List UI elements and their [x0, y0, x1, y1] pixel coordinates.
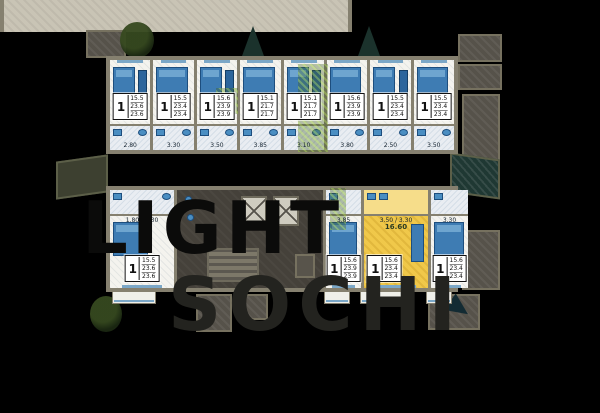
toilet-icon	[399, 129, 408, 136]
balcony	[112, 292, 156, 304]
total-area: 23.6	[142, 264, 155, 272]
total-area: 23.6	[130, 102, 143, 110]
full-area: 23.4	[390, 110, 403, 118]
bed-furniture	[330, 67, 361, 93]
window	[332, 285, 354, 288]
sink-icon	[200, 129, 209, 136]
sink-icon	[367, 193, 376, 200]
elevator	[241, 196, 267, 226]
living-area: 15.1	[260, 95, 273, 102]
dimension-label: 3.30	[167, 143, 180, 149]
window	[421, 60, 447, 63]
sink-icon	[187, 214, 194, 221]
corridor	[0, 0, 352, 32]
stove-icon	[379, 193, 388, 200]
living-area: 15.5	[174, 95, 187, 102]
unit-label: 1 15.623.423.4	[367, 255, 402, 282]
window	[122, 285, 163, 288]
full-area: 23.9	[344, 272, 357, 280]
toilet-icon	[442, 129, 451, 136]
bed-furniture	[434, 222, 464, 256]
total-area: 21.7	[260, 102, 273, 110]
stairwell-room-top-right	[458, 64, 502, 90]
sink-icon	[417, 129, 426, 136]
total-area: 23.4	[390, 102, 403, 110]
unit-cell[interactable]: 1.80 / 3.30 1 15.523.623.6	[110, 190, 174, 288]
total-area: 23.4	[174, 102, 187, 110]
unit-label: 1 15.623.923.9	[330, 93, 365, 120]
living-area: 15.5	[130, 95, 143, 102]
rooms-count: 1	[202, 95, 215, 118]
living-area: 15.6	[347, 95, 360, 102]
bottom-units-row: 1.80 / 3.30 1 15.523.623.6 3.85 1	[106, 186, 458, 292]
dimension-label: 3.85	[337, 218, 350, 224]
dimension-label: 3.50 / 3.30	[380, 218, 413, 224]
dimension-label: 3.10	[297, 143, 310, 149]
rooms-count: 1	[434, 257, 447, 280]
unit-cell[interactable]: 1 15.523.423.4 3.30	[153, 60, 193, 150]
full-area: 21.7	[260, 110, 273, 118]
living-area: 15.5	[142, 257, 155, 264]
window	[438, 285, 462, 288]
toilet-icon	[355, 129, 364, 136]
total-area: 23.4	[384, 264, 397, 272]
unit-label: 1 15.523.423.4	[156, 93, 191, 120]
unit-label: 1 15.523.423.4	[416, 93, 451, 120]
bed-furniture	[156, 67, 187, 93]
unit-cell[interactable]: 1 15.623.923.9 3.80	[327, 60, 367, 150]
rooms-count: 1	[328, 257, 341, 280]
rooms-count: 1	[288, 95, 301, 118]
window	[378, 60, 404, 63]
balcony	[324, 292, 350, 304]
sink-icon	[373, 129, 382, 136]
service-shaft	[295, 254, 315, 278]
bed-furniture	[243, 67, 274, 93]
dimension-label: 3.50	[210, 143, 223, 149]
living-area: 15.1	[304, 95, 317, 102]
entrance-porch	[240, 294, 268, 320]
window	[117, 60, 143, 63]
total-area: 21.7	[304, 102, 317, 110]
window	[376, 285, 417, 288]
unit-cell-selected[interactable]: 3.50 / 3.30 16.60 1 15.623.423.4	[364, 190, 428, 288]
sink-icon	[113, 129, 122, 136]
bathroom	[431, 190, 468, 216]
sink-icon	[434, 193, 443, 200]
roof-marker-icon	[242, 26, 264, 56]
room-area-label: 16.60	[385, 223, 407, 231]
toilet-icon	[138, 129, 147, 136]
floor-plan-screenshot: 1 15.523.623.6 2.80 1 15.523.423.4 3.30 …	[0, 0, 600, 413]
toilet-icon	[225, 129, 234, 136]
toilet-icon	[182, 129, 191, 136]
rooms-count: 1	[332, 95, 345, 118]
full-area: 21.7	[304, 110, 317, 118]
unit-cell[interactable]: 1 15.523.423.4 2.50	[370, 60, 410, 150]
full-area: 23.4	[450, 272, 463, 280]
living-area: 15.5	[390, 95, 403, 102]
sink-icon	[287, 129, 296, 136]
entrance-porch	[196, 294, 232, 332]
unit-label: 1 15.523.623.6	[125, 255, 160, 282]
toilet-icon	[162, 193, 171, 200]
unit-cell[interactable]: 3.30 1 15.623.423.4	[431, 190, 468, 288]
balcony	[426, 292, 452, 304]
total-area: 23.4	[450, 264, 463, 272]
total-area: 23.9	[344, 264, 357, 272]
dimension-label: 2.50	[384, 143, 397, 149]
elevator	[273, 196, 299, 226]
full-area: 23.9	[217, 110, 230, 118]
rooms-count: 1	[115, 95, 128, 118]
dimension-label: 2.80	[124, 143, 137, 149]
unit-label: 1 15.523.423.4	[373, 93, 408, 120]
dimension-label: 3.50	[427, 143, 440, 149]
bed-furniture	[113, 222, 148, 256]
building-core	[177, 190, 323, 288]
rooms-count: 1	[158, 95, 171, 118]
tree-icon	[120, 22, 154, 58]
window	[247, 60, 273, 63]
rooms-count: 1	[245, 95, 258, 118]
toilet-icon	[269, 129, 278, 136]
window	[334, 60, 360, 63]
staircase	[207, 248, 259, 282]
kitchen-zone	[364, 190, 428, 216]
full-area: 23.6	[130, 110, 143, 118]
unit-label: 1 15.623.923.9	[326, 255, 361, 282]
rooms-count: 1	[375, 95, 388, 118]
unit-cell[interactable]: 1 15.623.923.9 3.50	[197, 60, 237, 150]
total-area: 23.9	[347, 102, 360, 110]
sink-icon	[156, 129, 165, 136]
unit-cell[interactable]: 1 15.523.423.4 3.50	[414, 60, 454, 150]
dimension-label: 1.80 / 3.30	[126, 218, 159, 224]
full-area: 23.4	[384, 272, 397, 280]
top-units-row: 1 15.523.623.6 2.80 1 15.523.423.4 3.30 …	[106, 56, 458, 154]
unit-label: 1 15.523.623.6	[113, 93, 148, 120]
sink-icon	[330, 129, 339, 136]
bed-furniture	[417, 67, 448, 93]
roof-marker-icon	[358, 26, 380, 56]
side-wing-left	[56, 154, 108, 199]
dimension-label: 3.80	[340, 143, 353, 149]
total-area: 23.4	[434, 102, 447, 110]
living-area: 15.6	[384, 257, 397, 264]
full-area: 23.4	[174, 110, 187, 118]
sink-icon	[113, 193, 122, 200]
rooms-count: 1	[127, 257, 140, 280]
living-area: 15.6	[450, 257, 463, 264]
sink-icon	[185, 196, 192, 203]
balcony	[360, 292, 408, 304]
dimension-label: 3.30	[443, 218, 456, 224]
stairwell-shaft-right	[462, 94, 500, 164]
unit-label: 1 15.623.923.9	[200, 93, 235, 120]
sink-icon	[199, 202, 206, 209]
window	[204, 60, 230, 63]
unit-label: 1 15.623.423.4	[432, 255, 467, 282]
rooms-count: 1	[369, 257, 382, 280]
living-area: 15.6	[344, 257, 357, 264]
unit-label: 1 15.121.721.7	[243, 93, 278, 120]
rooms-count: 1	[418, 95, 431, 118]
stairwell-room-top-right	[458, 34, 502, 62]
full-area: 23.4	[434, 110, 447, 118]
full-area: 23.9	[347, 110, 360, 118]
window	[291, 60, 317, 63]
bathroom	[110, 190, 174, 216]
dimension-label: 3.85	[254, 143, 267, 149]
unit-cell[interactable]: 1 15.523.623.6 2.80	[110, 60, 150, 150]
living-area: 15.5	[434, 95, 447, 102]
window	[161, 60, 187, 63]
living-area: 15.6	[217, 95, 230, 102]
sink-icon	[243, 129, 252, 136]
sofa-furniture	[411, 224, 424, 262]
unit-label: 1 15.121.721.7	[286, 93, 321, 120]
full-area: 23.6	[142, 272, 155, 280]
total-area: 23.9	[217, 102, 230, 110]
unit-cell[interactable]: 1 15.121.721.7 3.85	[240, 60, 280, 150]
